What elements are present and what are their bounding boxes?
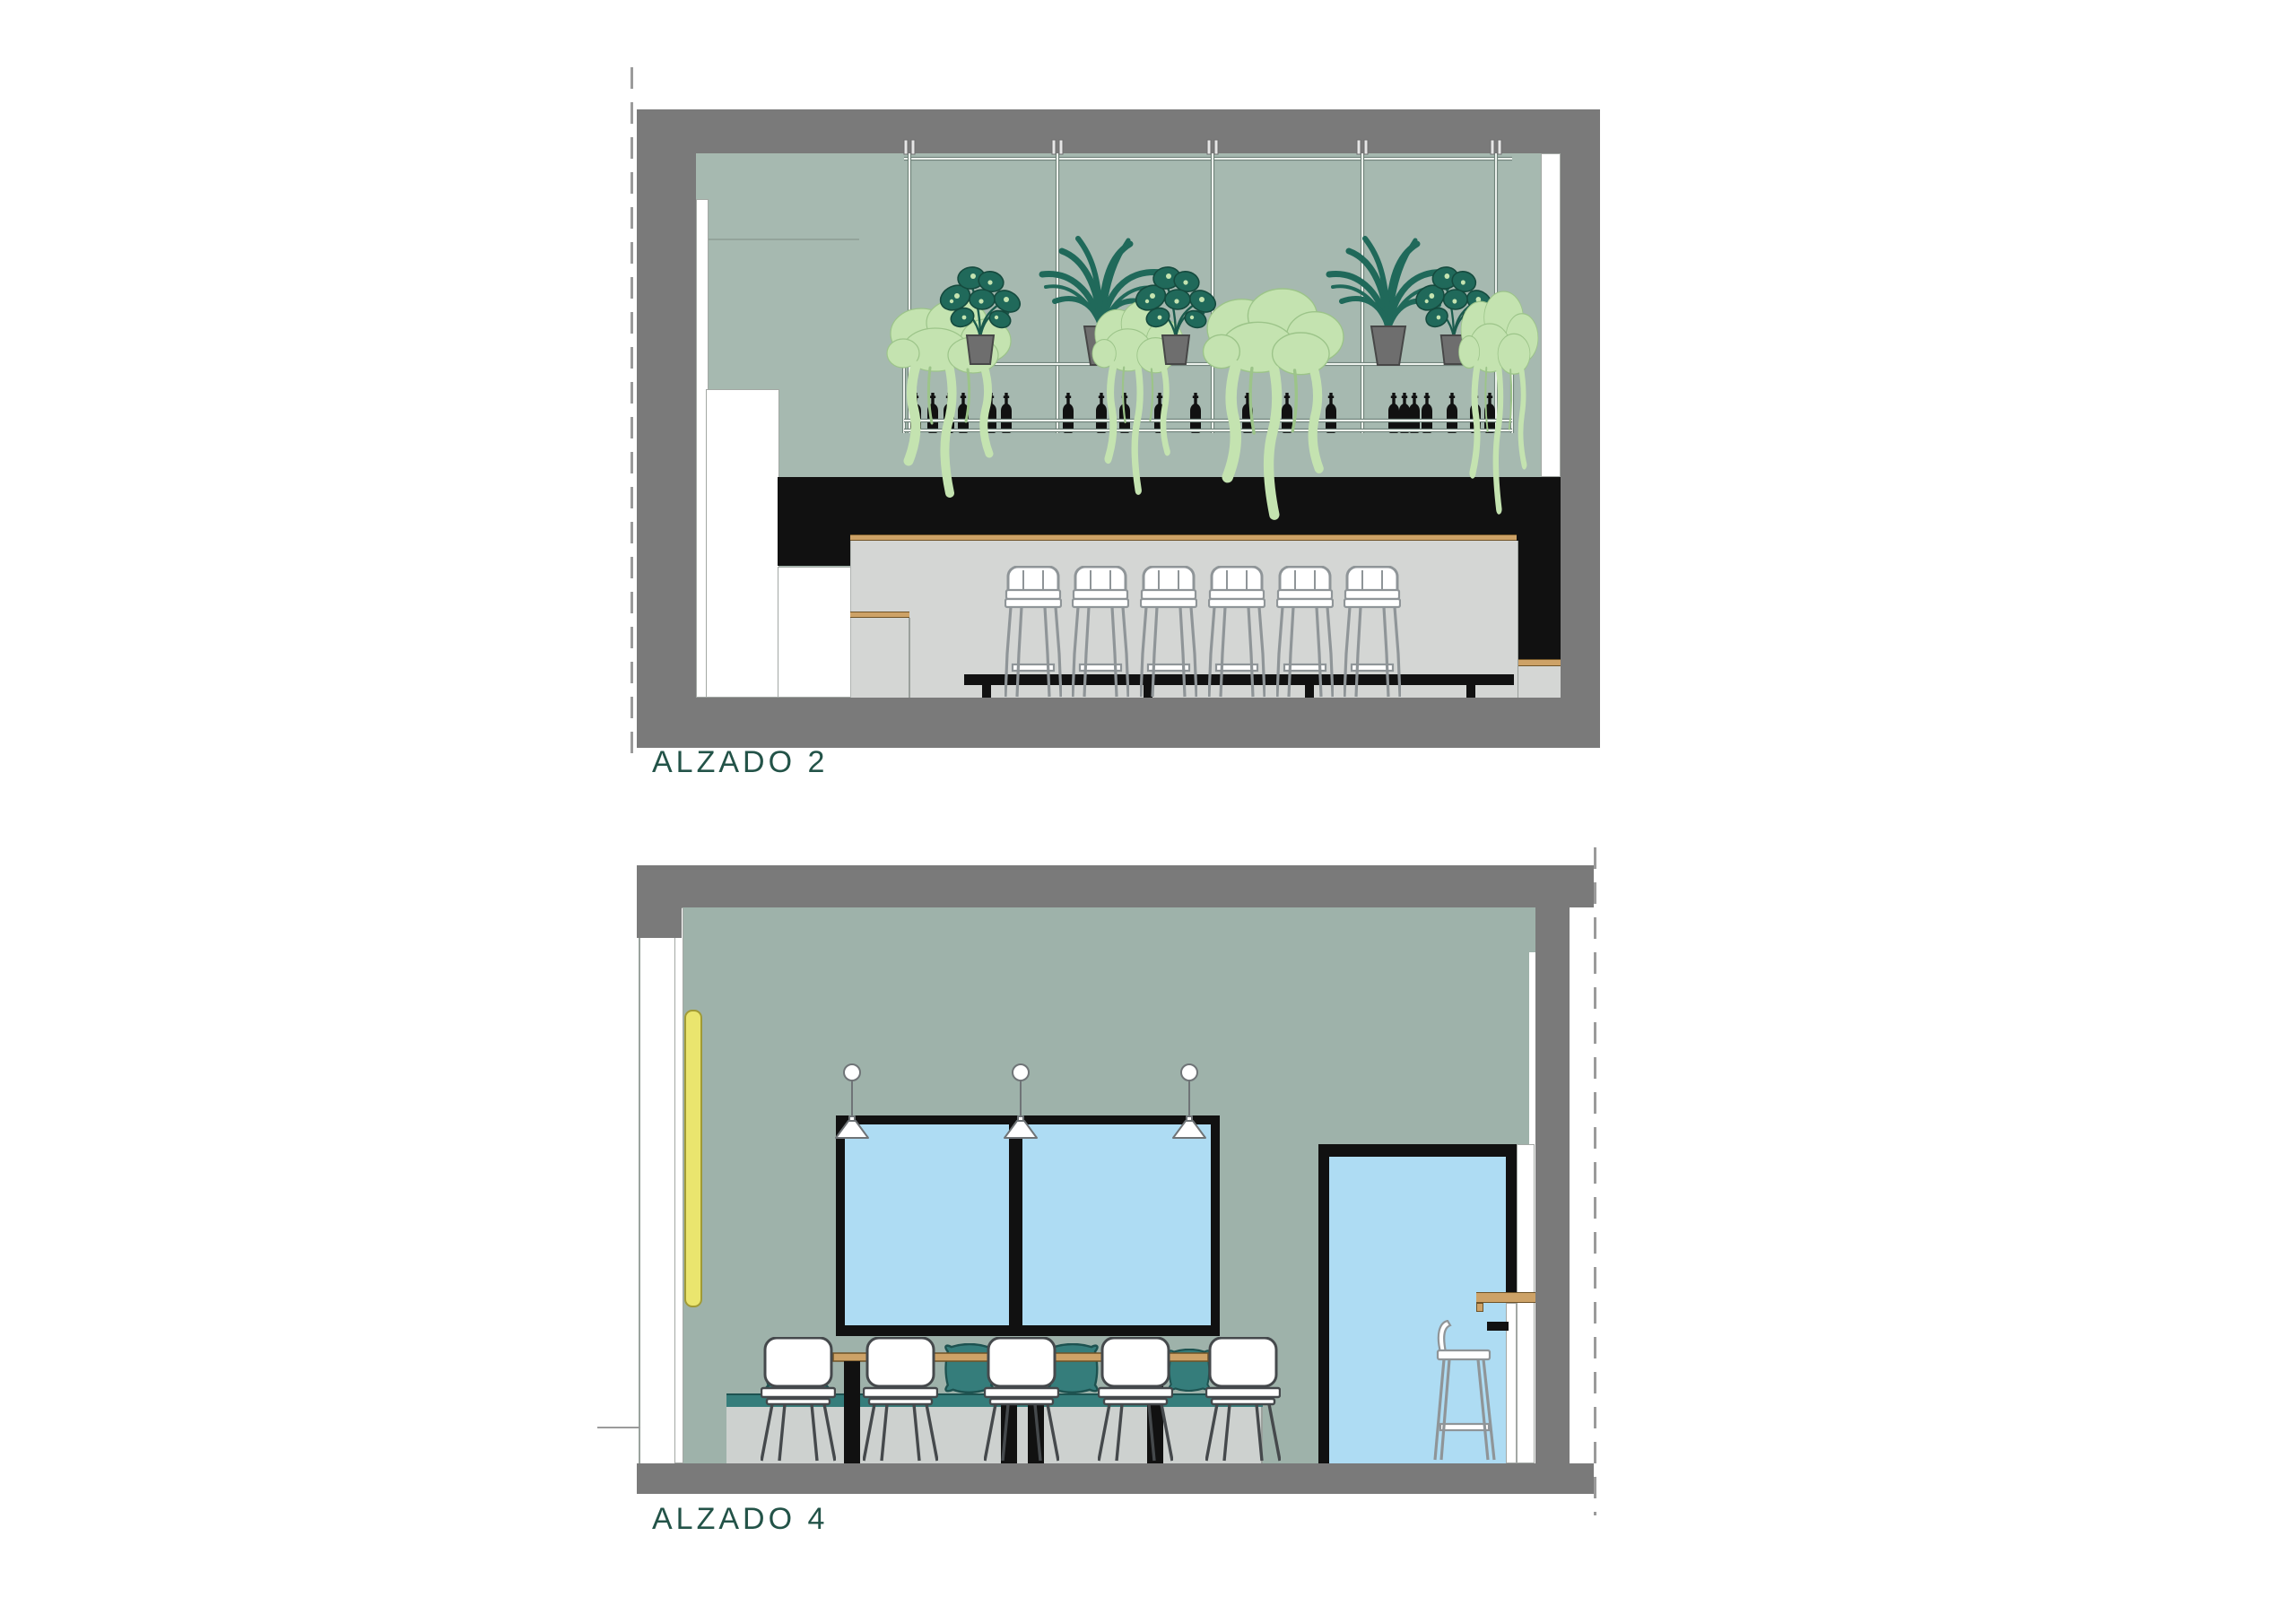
yellow-light-strip: [684, 1010, 702, 1307]
wall-section-top-2: [637, 865, 1594, 907]
wall-corner-stub-left: [637, 907, 682, 938]
wall-section-top: [637, 109, 1600, 153]
window-pane-left: [845, 1124, 1009, 1325]
window-pane-right: [1022, 1124, 1211, 1325]
elevation2-label: ALZADO 4: [652, 1504, 828, 1534]
wall-section-right: [1561, 153, 1600, 698]
bench-front: [726, 1407, 1263, 1463]
wall-edge-line: [709, 239, 859, 240]
door-handle: [1487, 1322, 1509, 1331]
wood-ledge: [1476, 1292, 1536, 1303]
door-frame-left: [1318, 1157, 1329, 1463]
floor-slab-2: [637, 1463, 1594, 1494]
white-column: [706, 389, 779, 698]
section-boundary-dashed-line-left: [631, 67, 633, 762]
wall-reveal-strip-right: [1541, 153, 1561, 477]
door-frame-right: [1506, 1157, 1517, 1292]
bar-counter-front: [850, 541, 1518, 698]
white-back-cabinet: [778, 567, 852, 698]
bar-counter-wood-top: [850, 534, 1517, 541]
right-step-front: [1517, 666, 1561, 698]
section-boundary-dashed-line-right: [1594, 847, 1596, 1515]
left-step-wood-top: [850, 612, 909, 618]
left-step-edge-line: [909, 618, 910, 698]
wood-ledge-bracket: [1476, 1303, 1483, 1312]
right-step-wood-top: [1517, 659, 1561, 666]
floor-slab: [637, 698, 1600, 748]
black-backbar-right-return: [1517, 566, 1561, 659]
left-edge-line: [639, 938, 640, 1463]
datum-tick-line: [597, 1427, 640, 1428]
wall-section-left: [637, 153, 696, 698]
door-frame-top: [1318, 1144, 1517, 1157]
left-wall-lining-strip: [674, 907, 683, 1463]
wall-section-right-2: [1535, 907, 1570, 1463]
drawing-sheet: ALZADO 2 ALZADO 4: [0, 0, 2296, 1623]
bench-seat-cushion-band: [726, 1393, 1263, 1407]
door-jamb-strip: [1517, 1144, 1535, 1463]
elevation1-label: ALZADO 2: [652, 747, 828, 777]
